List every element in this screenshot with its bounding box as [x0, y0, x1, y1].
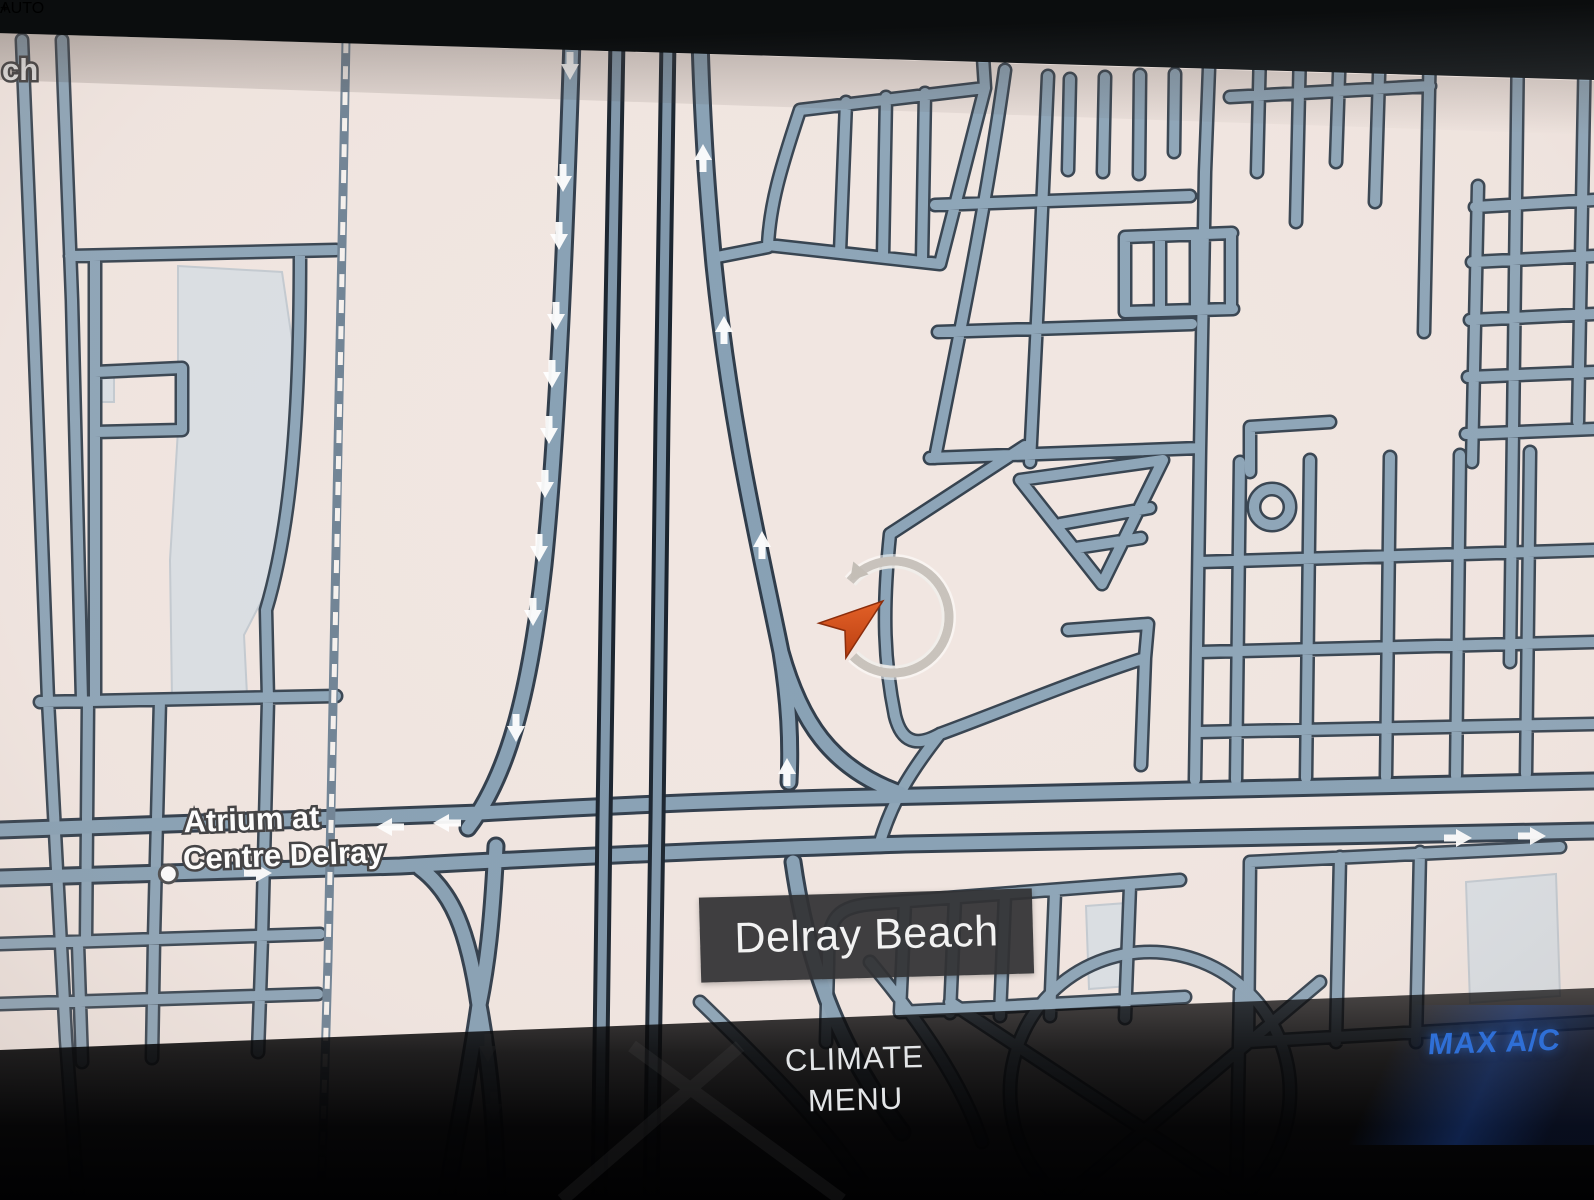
poi-label-line1: Atrium at	[183, 800, 320, 840]
poi-label-line2: Centre Delray	[182, 834, 385, 876]
navigation-map[interactable]: Atrium at Centre Delray ch	[0, 0, 1594, 1200]
poi-dot	[159, 865, 178, 884]
zoom-in-button[interactable]: +	[0, 0, 9, 18]
edge-street-label: ch	[2, 52, 38, 87]
climate-menu-button[interactable]: CLIMATE MENU	[689, 1033, 1021, 1124]
infotainment-screen: Atrium at Centre Delray ch Delray Beach …	[0, 0, 1594, 1200]
max-ac-button[interactable]: MAX A/C	[1427, 1024, 1562, 1063]
city-name-text: Delray Beach	[734, 907, 999, 963]
city-name-badge: Delray Beach	[699, 888, 1034, 982]
